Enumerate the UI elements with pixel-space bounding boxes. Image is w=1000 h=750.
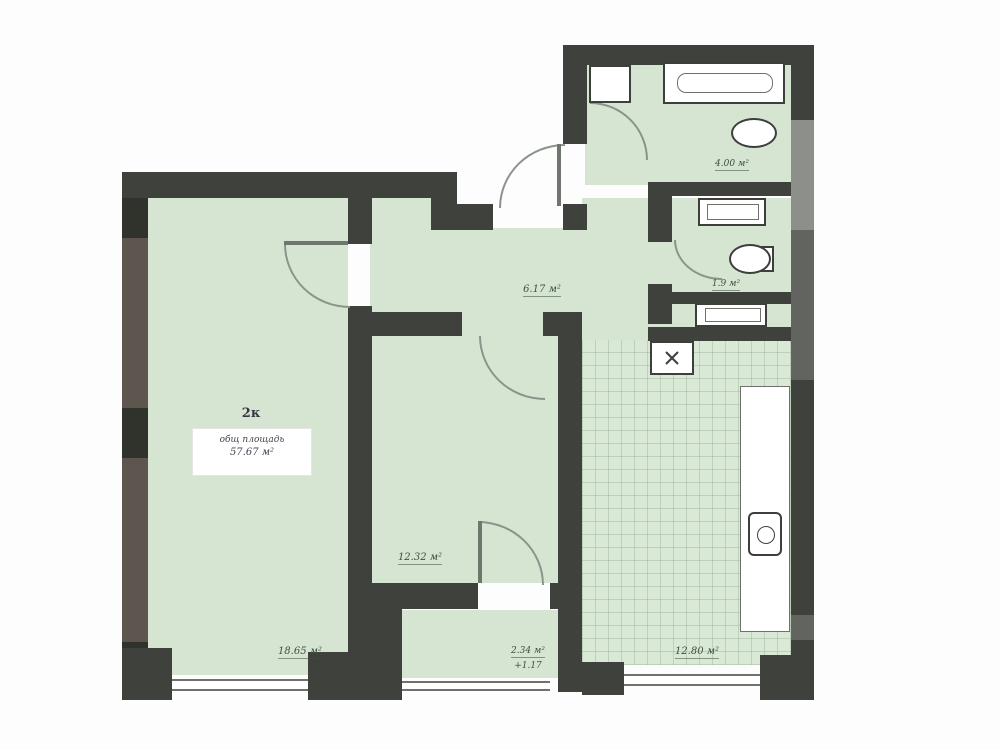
door-leaf-balcony bbox=[478, 521, 482, 583]
area-label-hallway: 6.17 м² bbox=[500, 284, 584, 296]
wall-bottom-pier bbox=[582, 662, 624, 695]
kitchen-sink-icon bbox=[748, 512, 782, 556]
area-label-living: 18.65 м² bbox=[252, 646, 348, 658]
toilet-icon bbox=[729, 244, 771, 274]
wall-right-pier bbox=[791, 380, 814, 615]
wall-top-left-room bbox=[122, 172, 457, 198]
wall-bottom-pier bbox=[760, 655, 814, 700]
wall-right-pier bbox=[791, 45, 814, 120]
wall-living-hall-upper bbox=[348, 196, 372, 244]
total-area-value: 57.67 м² bbox=[193, 446, 311, 459]
room-hallway bbox=[582, 198, 648, 340]
area-label-bathroom: 4.00 м² bbox=[692, 158, 772, 170]
wall-bottom-pier bbox=[308, 652, 398, 700]
door-arc-entrance bbox=[499, 144, 565, 208]
apartment-type-label: 2к bbox=[226, 406, 276, 421]
area-label-bedroom: 12.32 м² bbox=[374, 552, 466, 564]
wall-bedroom-kitchen bbox=[558, 312, 582, 692]
wall-bedroom-balcony-right bbox=[550, 583, 582, 609]
washbasin-icon bbox=[731, 118, 777, 148]
wall-wc-left-post bbox=[648, 182, 672, 242]
area-label-balcony: 2.34 м² bbox=[490, 645, 566, 657]
washing-machine-icon bbox=[698, 198, 766, 226]
washing-machine-2-icon bbox=[695, 303, 767, 327]
wall-bottom-pier bbox=[122, 648, 172, 700]
area-label-kitchen: 12.80 м² bbox=[642, 646, 752, 658]
window-balcony bbox=[402, 681, 550, 691]
shelf-cabinet-icon bbox=[589, 65, 631, 103]
bathtub-icon bbox=[663, 62, 785, 104]
door-leaf-living bbox=[284, 241, 348, 245]
coefficient-label-balcony: +1.17 bbox=[496, 660, 560, 672]
wall-hall-bedroom-left bbox=[370, 312, 462, 336]
total-area-caption: общ площадь bbox=[193, 434, 311, 446]
wall-right-window-band bbox=[791, 120, 814, 230]
floor-plan: 2к общ площадь 57.67 м² 18.65 м² 12.32 м… bbox=[0, 0, 1000, 750]
window-living bbox=[172, 679, 308, 691]
kitchen-counter-icon bbox=[740, 386, 790, 632]
wall-wc-left-post bbox=[648, 284, 672, 324]
window-kitchen bbox=[624, 674, 760, 686]
wall-left-pier bbox=[122, 408, 148, 458]
area-label-wc: 1.9 м² bbox=[686, 278, 766, 290]
wall-living-hall-lower bbox=[348, 306, 372, 602]
wall-entry-left-post bbox=[563, 204, 587, 230]
door-leaf-entrance bbox=[557, 144, 561, 206]
total-area-box: общ площадь 57.67 м² bbox=[192, 428, 312, 476]
wall-wc-bottom bbox=[648, 327, 791, 341]
vent-cross-icon bbox=[652, 343, 692, 373]
wall-step-horizontal bbox=[431, 204, 493, 230]
vent-shaft-icon bbox=[650, 341, 694, 375]
